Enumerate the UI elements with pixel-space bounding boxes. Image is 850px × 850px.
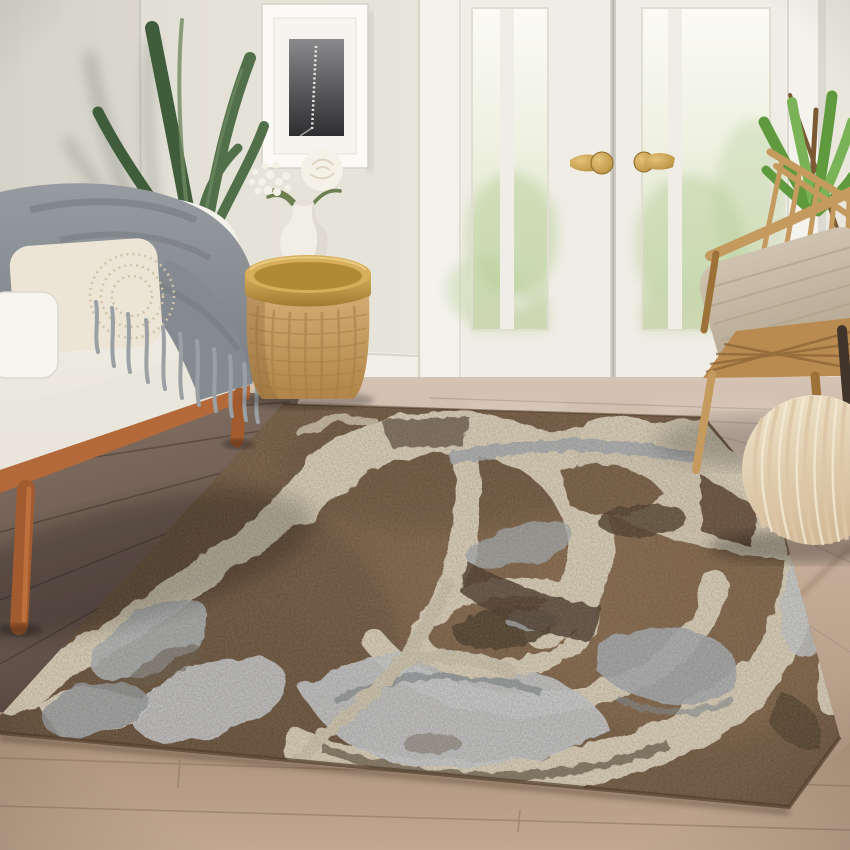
scene-canvas [0,0,850,850]
living-room-photo [0,0,850,850]
vignette [0,0,850,850]
